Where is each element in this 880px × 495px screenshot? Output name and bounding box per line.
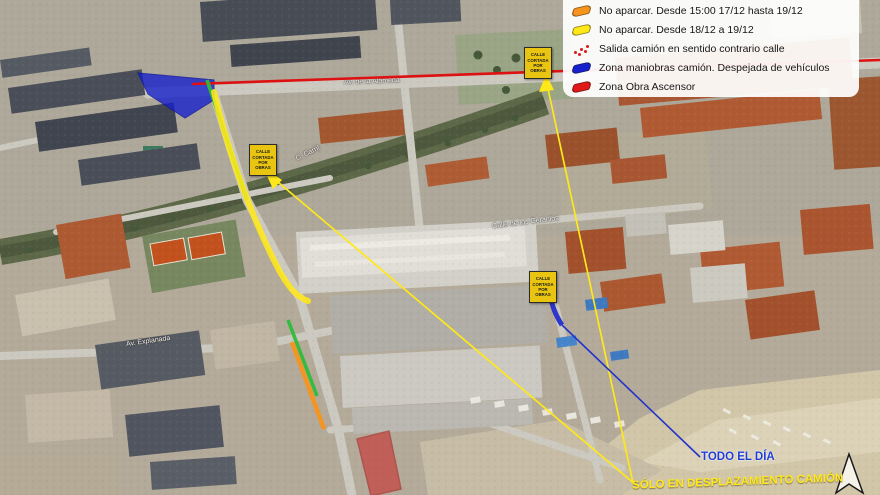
map-legend: No aparcar. Desde 15:00 17/12 hasta 19/1…: [563, 0, 859, 97]
closed-street-sign-1: CALLE CORTADA POR OBRAS: [524, 47, 552, 79]
callout-line-to-sign-2: [272, 177, 637, 486]
legend-label: Zona maniobras camión. Despejada de vehí…: [599, 62, 830, 74]
work-zone-red-polygon: [357, 431, 401, 495]
legend-label: Salida camión en sentido contrario calle: [599, 43, 785, 55]
legend-item-maneuver-zone: Zona maniobras camión. Despejada de vehí…: [573, 58, 855, 77]
red-dotted-arrow-swatch-icon: [573, 44, 590, 54]
callout-line-to-sign-1: [547, 84, 633, 483]
no-parking-orange-band: [292, 342, 324, 429]
legend-label: Zona Obra Ascensor: [599, 81, 695, 93]
legend-item-no-parking-18-12: No aparcar. Desde 18/12 a 19/12: [573, 20, 855, 39]
annotated-satellite-map: Av. de la Alameda C. Carril Calle de los…: [0, 0, 880, 495]
legend-item-work-zone: Zona Obra Ascensor: [573, 77, 855, 96]
legend-label: No aparcar. Desde 18/12 a 19/12: [599, 24, 754, 36]
callout-line-todo-el-dia: [562, 325, 700, 457]
legend-label: No aparcar. Desde 15:00 17/12 hasta 19/1…: [599, 5, 803, 17]
yellow-zone-swatch-icon: [570, 23, 592, 37]
callout-todo-el-dia: TODO EL DÍA: [701, 451, 775, 463]
closed-street-sign-3: CALLE CORTADA POR OBRAS: [529, 271, 557, 303]
orange-zone-swatch-icon: [570, 4, 592, 18]
blue-zone-swatch-icon: [570, 61, 592, 75]
maneuver-zone-blue-wedge: [138, 73, 214, 118]
closed-street-sign-2: CALLE CORTADA POR OBRAS: [249, 144, 277, 176]
legend-item-no-parking-17-12: No aparcar. Desde 15:00 17/12 hasta 19/1…: [573, 1, 855, 20]
route-green-line-south: [288, 320, 317, 396]
legend-item-truck-exit: Salida camión en sentido contrario calle: [573, 39, 855, 58]
red-zone-swatch-icon: [570, 80, 592, 94]
